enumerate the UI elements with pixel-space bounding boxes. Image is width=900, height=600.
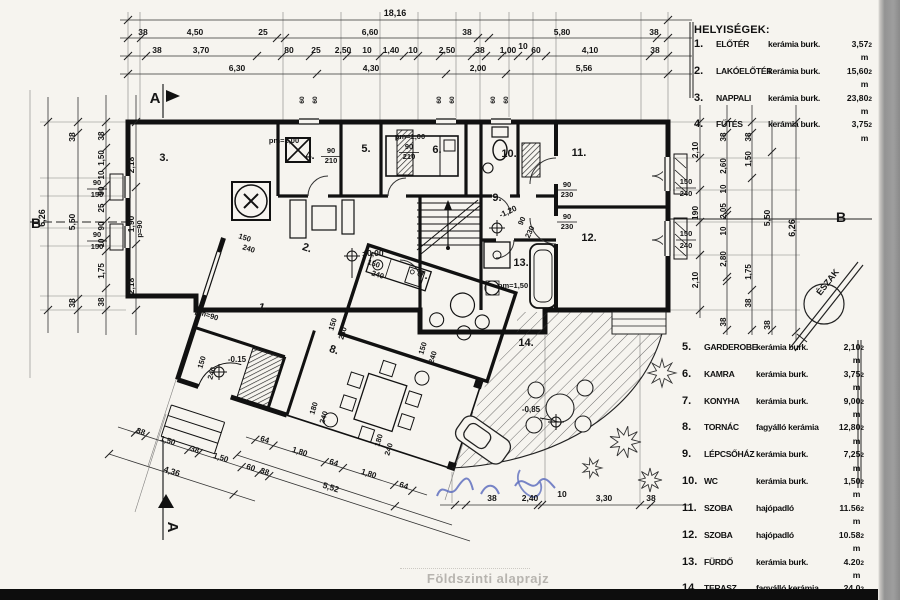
room-number: 7.: [418, 270, 427, 282]
opening-size: 90: [93, 230, 101, 239]
fraction-lines: [87, 153, 696, 242]
room-number: 1.: [257, 301, 269, 315]
scan-bottom-bar: [0, 589, 878, 600]
opening-size: 210: [403, 152, 416, 161]
legend-room-number: 6.: [682, 368, 704, 381]
legend-row: 13.FÜRDŐkerámia burk.4.20 m2: [682, 556, 864, 583]
shrub-icon: [648, 359, 676, 387]
legend-room-area: 12,80 m: [834, 421, 860, 448]
legend-area-sup: 2: [868, 66, 872, 79]
room-number: 6.: [432, 144, 441, 156]
staircase: [417, 200, 482, 254]
legend-room-material: kerámia burk.: [768, 92, 846, 105]
dim-label: 38: [67, 132, 77, 142]
dim-label: 6,26: [787, 219, 797, 237]
legend-room-material: kerámia burk.: [768, 65, 846, 78]
dim-label: 10: [719, 184, 728, 193]
legend-rooms-top: HELYISÉGEK: 1.ELŐTÉRkerámia burk.3,57 m2…: [694, 24, 872, 145]
dim-label: 38: [67, 298, 77, 308]
room-number: 9.: [492, 192, 501, 204]
dim-label: 1,75: [97, 263, 106, 279]
legend-room-number: 11.: [682, 502, 704, 515]
level-label: -0.15: [228, 355, 247, 364]
legend-room-number: 1.: [694, 38, 716, 51]
room-number: 14.: [518, 337, 533, 349]
legend-room-material: hajópadló: [756, 502, 834, 515]
scan-edge-strip: [878, 0, 900, 600]
dim-label: 5,56: [576, 63, 593, 73]
dim-label: 38: [762, 320, 772, 330]
dim-label: 10: [518, 41, 528, 51]
legend-area-sup: 2: [868, 119, 872, 132]
dim-tick: [269, 442, 277, 450]
opening-size: 150: [326, 317, 338, 332]
opening-size: 90: [563, 212, 571, 221]
legend-row: 8.TORNÁCfagyálló kerámia12,80 m2: [682, 421, 864, 448]
legend-room-number: 13.: [682, 556, 704, 569]
room-number: 8.: [328, 343, 340, 357]
legend-room-name: ELŐTÉR: [716, 38, 768, 51]
legend-room-name: FÜRDŐ: [704, 556, 756, 569]
dim-label: 4,36: [163, 464, 182, 479]
terrace: [452, 312, 666, 468]
legend-room-number: 8.: [682, 421, 704, 434]
legend-row: 4.FŰTÉSkerámia burk.3,75 m2: [694, 118, 872, 145]
opening-size: 90: [93, 178, 101, 187]
legend-room-material: fagyálló kerámia: [756, 421, 834, 434]
dim-label: 38: [475, 45, 485, 55]
section-marker-a: A: [150, 90, 161, 107]
level-label: -1,20: [498, 204, 519, 220]
room-number: 10.: [501, 148, 516, 160]
legend-room-material: kerámia burk.: [756, 341, 834, 354]
dim-label: 5,80: [554, 27, 571, 37]
opening-size: 150: [195, 355, 207, 370]
room-number: 12.: [581, 232, 596, 244]
opening-size: 240: [426, 350, 438, 365]
legend-room-area: 15,60 m: [846, 65, 868, 92]
parapet-note: pm=1,00: [395, 132, 425, 141]
opening-size: 240: [317, 410, 329, 425]
legend-room-material: kerámia burk.: [768, 118, 846, 131]
opening-size: 210: [325, 156, 338, 165]
opening-size: 60: [299, 96, 306, 104]
dim-label: 64: [398, 480, 410, 491]
dim-label: 1,50: [159, 434, 177, 448]
legend-area-sup: 2: [860, 369, 864, 382]
legend-room-number: 12.: [682, 529, 704, 542]
legend-room-name: KONYHA: [704, 395, 756, 408]
dim-label: 38: [462, 27, 472, 37]
opening-size: 240: [370, 268, 385, 280]
room-number: 11.: [572, 147, 587, 159]
room-number: 2.: [301, 241, 313, 255]
legend-room-material: kerámia burk.: [756, 368, 834, 381]
opening-size: 230: [523, 224, 536, 239]
legend-room-name: LAKÓELŐTÉR: [716, 65, 768, 78]
floorplan-page: 18,16384,50256,60385,8038383,7080252,501…: [0, 0, 900, 600]
dim-label: 38: [487, 493, 497, 503]
legend-room-name: WC: [704, 475, 756, 488]
dim-label: 1,50: [97, 150, 106, 166]
dim-label: 4,10: [582, 45, 599, 55]
dim-label: 38: [719, 317, 728, 326]
legend-area-sup: 2: [860, 396, 864, 409]
dim-tick: [339, 464, 347, 472]
opening-size: 90: [405, 142, 413, 151]
legend-room-name: KAMRA: [704, 368, 756, 381]
dim-label: 18,16: [384, 8, 407, 18]
dim-label: 10: [719, 226, 728, 235]
legend-room-material: hajópadló: [756, 529, 834, 542]
opening-size: 90: [563, 180, 571, 189]
opening-size: 90: [327, 146, 335, 155]
dim-label: 38: [97, 131, 106, 140]
dim-tick: [233, 451, 241, 459]
dim-label: 1,40: [383, 45, 400, 55]
opening-size: 240: [680, 241, 693, 250]
dim-label: 2,18: [126, 277, 136, 294]
dim-tick: [230, 490, 238, 498]
dim-label: 1,80: [360, 467, 378, 481]
opening-size: 150: [416, 341, 428, 356]
level-label: ±0,00: [362, 248, 383, 258]
legend-row: 9.LÉPCSŐHÁZkerámia burk.7,25 m2: [682, 448, 864, 475]
legend-room-number: 9.: [682, 448, 704, 461]
legend-room-area: 3,57 m: [846, 38, 868, 65]
legend-heading: HELYISÉGEK:: [694, 24, 872, 36]
parapet-note: p=90: [135, 220, 144, 237]
opening-size: 60: [449, 96, 456, 104]
shrub-icon: [583, 458, 602, 477]
dim-label: 3,70: [193, 45, 210, 55]
north-label: ÉSZAK: [814, 267, 841, 298]
room-number: 13.: [513, 257, 528, 269]
legend-row: 10.WCkerámia burk.1,50 m2: [682, 475, 864, 502]
dim-tick: [408, 487, 416, 495]
legend-room-area: 7,25 m: [834, 448, 860, 475]
legend-room-area: 23,80 m: [846, 92, 868, 119]
legend-area-sup: 2: [860, 503, 864, 516]
dim-label: 1,50: [744, 151, 753, 167]
legend-area-sup: 2: [860, 342, 864, 355]
opening-size: 230: [561, 222, 574, 231]
legend-area-sup: 2: [860, 449, 864, 462]
legend-room-number: 7.: [682, 395, 704, 408]
opening-size: 180: [307, 401, 319, 416]
parapet-note: pm=1,00: [269, 136, 299, 145]
legend-room-area: 11.56 m: [834, 502, 860, 529]
opening-size: 150: [680, 229, 693, 238]
shrub-icon: [610, 426, 641, 458]
legend-room-number: 2.: [694, 65, 716, 78]
section-marker-b: B: [836, 209, 846, 225]
legend-room-area: 1,50 m: [834, 475, 860, 502]
dim-label: 10: [362, 45, 372, 55]
dim-label: 1,75: [744, 264, 753, 280]
opening-size: 90: [516, 215, 528, 226]
legend-area-sup: 2: [860, 557, 864, 570]
dim-label: 6,30: [229, 63, 246, 73]
dim-label: 4,50: [187, 27, 204, 37]
room-number: 4.: [305, 150, 314, 162]
dim-tick: [251, 436, 259, 444]
legend-room-name: TORNÁC: [704, 421, 756, 434]
dim-label: 5,52: [322, 480, 341, 495]
legend-room-name: LÉPCSŐHÁZ: [704, 448, 756, 461]
legend-rooms-bottom: 5.GARDEROBEkerámia burk.2,10 m26.KAMRAke…: [682, 341, 864, 600]
room-number: 3.: [159, 152, 168, 164]
legend-room-material: kerámia burk.: [768, 38, 846, 51]
opening-size: 60: [490, 96, 497, 104]
section-marker-b: B: [31, 215, 41, 231]
legend-area-sup: 2: [860, 530, 864, 543]
legend-row: 7.KONYHAkerámia burk.9,00 m2: [682, 395, 864, 422]
drawing-title: Földszinti alaprajz: [398, 571, 578, 586]
parapet-note: pm=1,50: [498, 281, 528, 290]
dim-label: 5,50: [67, 213, 77, 230]
legend-row: 5.GARDEROBEkerámia burk.2,10 m2: [682, 341, 864, 368]
legend-area-sup: 2: [868, 93, 872, 106]
opening-size: 150: [680, 177, 693, 186]
dim-label: 2,10: [690, 271, 700, 288]
legend-room-name: SZOBA: [704, 529, 756, 542]
dim-label: 2,18: [126, 156, 136, 173]
legend-room-name: NAPPALI: [716, 92, 768, 105]
legend-room-area: 2,10 m: [834, 341, 860, 368]
opening-size: 240: [241, 242, 256, 254]
opening-size: 240: [205, 366, 217, 381]
legend-room-name: GARDEROBE: [704, 341, 756, 354]
dim-label: 6,60: [362, 27, 379, 37]
legend-room-number: 4.: [694, 118, 716, 131]
opening-size: 240: [680, 189, 693, 198]
dim-label: 1,50: [212, 451, 230, 465]
dim-label: 2,40: [522, 493, 539, 503]
dim-label: 3,30: [596, 493, 613, 503]
dim-label: 190: [690, 206, 700, 220]
level-label: -0,85: [522, 405, 541, 414]
legend-row: 12.SZOBAhajópadló10.58 m2: [682, 529, 864, 556]
legend-room-area: 3,75 m: [846, 118, 868, 145]
dim-label: 2,80: [719, 251, 728, 267]
opening-size: 60: [436, 96, 443, 104]
dim-label: 1,80: [291, 445, 309, 459]
legend-room-material: kerámia burk.: [756, 448, 834, 461]
opening-size: 230: [561, 190, 574, 199]
dim-label: 38: [649, 27, 659, 37]
dim-label: 1,00: [500, 45, 517, 55]
legend-room-material: kerámia burk.: [756, 556, 834, 569]
dim-tick: [390, 481, 398, 489]
opening-size: 150: [91, 190, 104, 199]
dim-label: 5,50: [762, 209, 772, 226]
dim-label: 25: [258, 27, 268, 37]
dim-label: 38: [744, 298, 753, 307]
dim-label: 38: [97, 297, 106, 306]
dim-label: 38: [152, 45, 162, 55]
dim-label: 10: [408, 45, 418, 55]
legend-area-sup: 2: [860, 422, 864, 435]
legend-room-area: 3,75 m: [834, 368, 860, 395]
legend-room-area: 10.58 m: [834, 529, 860, 556]
dim-label: 4,30: [363, 63, 380, 73]
caption-rule: [400, 568, 530, 569]
legend-area-sup: 2: [860, 476, 864, 489]
opening-size: 60: [503, 96, 510, 104]
dim-tick: [391, 502, 399, 510]
legend-room-material: kerámia burk.: [756, 395, 834, 408]
legend-row: 6.KAMRAkerámia burk.3,75 m2: [682, 368, 864, 395]
legend-row: 2.LAKÓELŐTÉRkerámia burk.15,60 m2: [694, 65, 872, 92]
legend-room-material: kerámia burk.: [756, 475, 834, 488]
legend-row: 11.SZOBAhajópadló11.56 m2: [682, 502, 864, 529]
opening-size: 150: [91, 242, 104, 251]
angled-wing: [155, 201, 515, 527]
opening-size: 240: [336, 326, 348, 341]
opening-size: 60: [312, 96, 319, 104]
opening-size: 240: [382, 442, 394, 457]
dim-tick: [105, 450, 113, 458]
legend-area-sup: 2: [868, 39, 872, 52]
dim-label: 80: [284, 45, 294, 55]
legend-room-number: 3.: [694, 92, 716, 105]
opening-size: 180: [372, 433, 384, 448]
legend-room-area: 9,00 m: [834, 395, 860, 422]
shrub-icon: [638, 468, 662, 492]
legend-room-number: 10.: [682, 475, 704, 488]
legend-row: 3.NAPPALIkerámia burk.23,80 m2: [694, 92, 872, 119]
legend-room-name: FŰTÉS: [716, 118, 768, 131]
legend-room-name: SZOBA: [704, 502, 756, 515]
dim-label: 10: [557, 489, 567, 499]
room-number: 5.: [361, 143, 370, 155]
dim-label: 64: [259, 434, 271, 445]
dim-label: 2,50: [439, 45, 456, 55]
legend-row: 1.ELŐTÉRkerámia burk.3,57 m2: [694, 38, 872, 65]
section-marker-a: A: [164, 522, 181, 533]
legend-room-number: 5.: [682, 341, 704, 354]
dim-label: 2,00: [470, 63, 487, 73]
dim-label: 2,60: [719, 158, 728, 174]
legend-room-area: 4.20 m: [834, 556, 860, 583]
